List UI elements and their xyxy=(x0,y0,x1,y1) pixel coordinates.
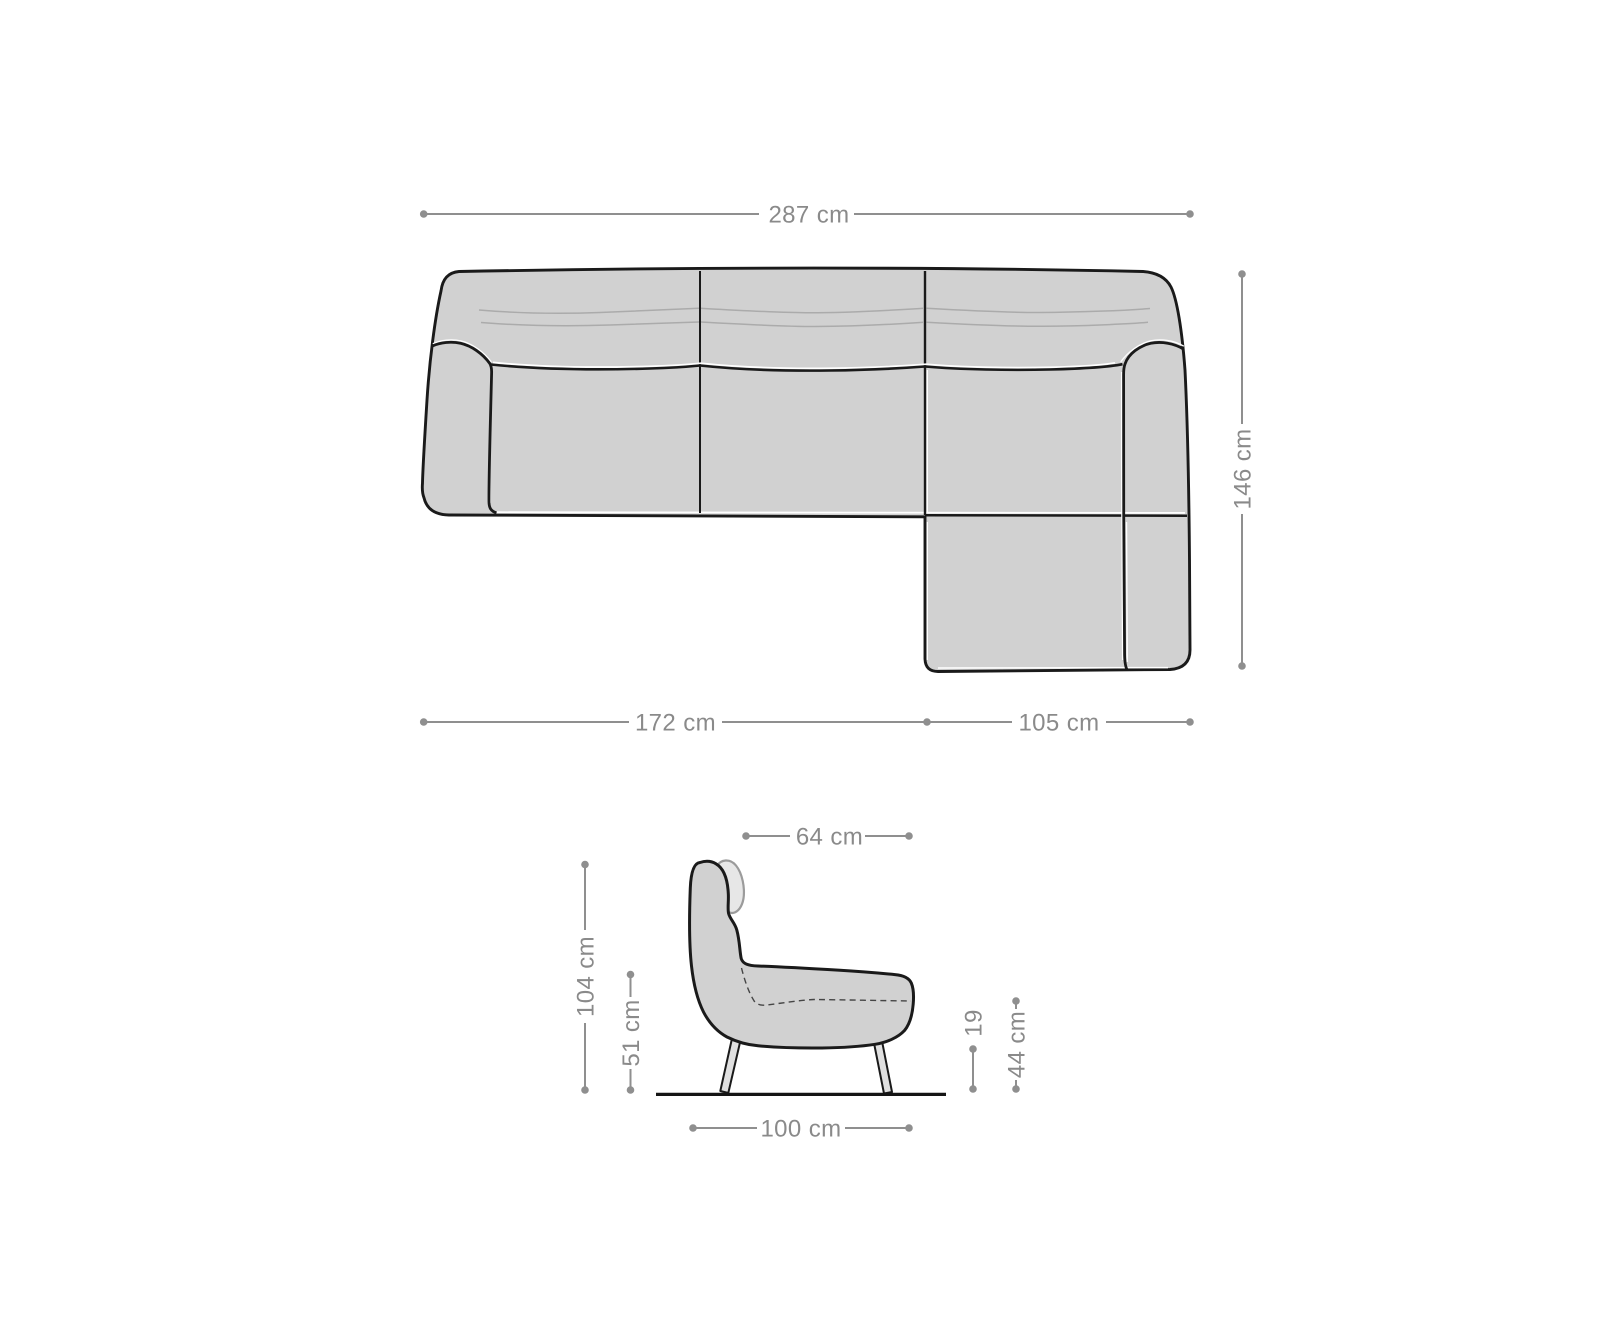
svg-text:19: 19 xyxy=(961,1009,988,1037)
svg-text:287 cm: 287 cm xyxy=(768,202,849,229)
svg-text:51 cm: 51 cm xyxy=(618,999,645,1066)
svg-text:146 cm: 146 cm xyxy=(1230,428,1257,509)
svg-text:100 cm: 100 cm xyxy=(760,1116,841,1143)
svg-text:64 cm: 64 cm xyxy=(796,824,863,851)
svg-text:104 cm: 104 cm xyxy=(573,936,600,1017)
svg-text:44 cm: 44 cm xyxy=(1004,1011,1031,1078)
svg-text:172 cm: 172 cm xyxy=(635,710,716,737)
svg-text:105 cm: 105 cm xyxy=(1018,710,1099,737)
